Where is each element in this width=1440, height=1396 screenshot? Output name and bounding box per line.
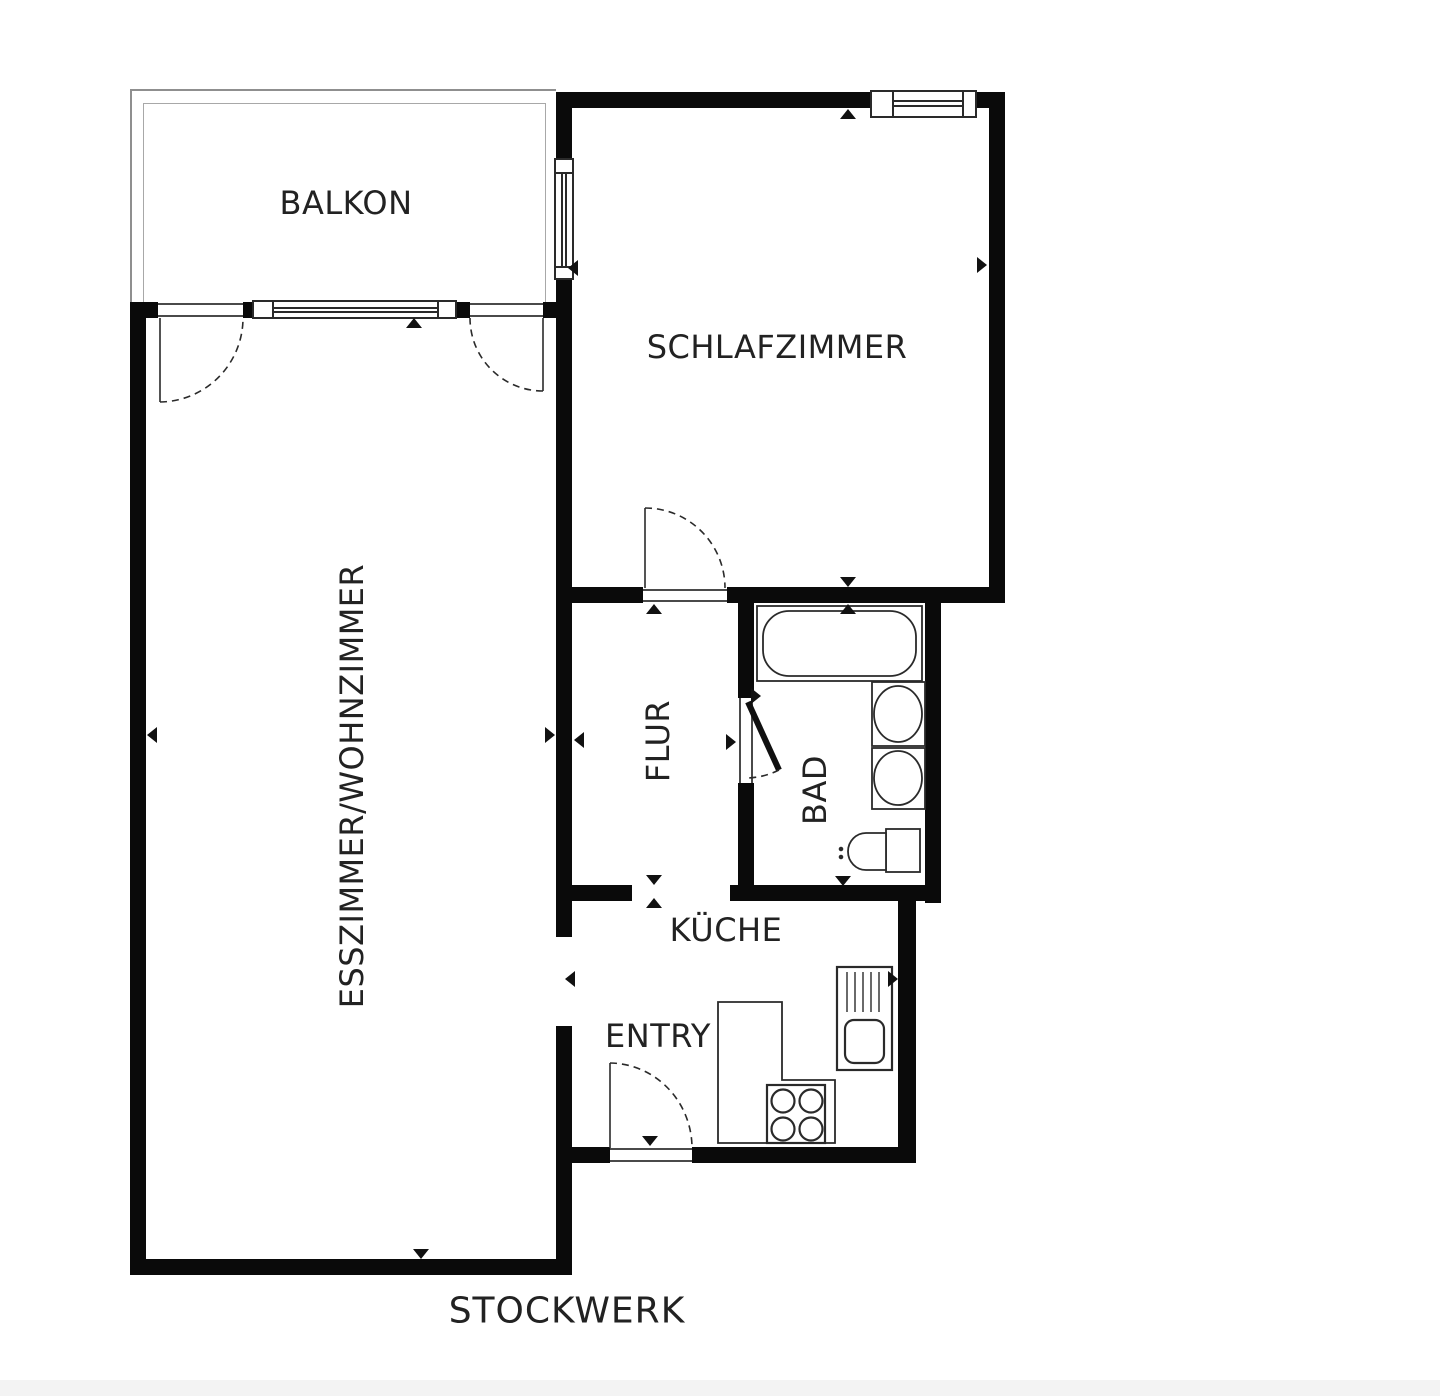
- marker-kitchen-opening: [646, 898, 662, 908]
- marker-bedroom-window: [568, 260, 578, 276]
- bathroom-door-arc: [748, 770, 779, 778]
- washbasin-1-bowl: [874, 686, 922, 742]
- marker-bath-bottom: [835, 876, 851, 886]
- bathtub-basin: [763, 611, 916, 676]
- floor-plan-canvas: BALKON SCHLAFZIMMER ESSZIMMER/WOHNZIMMER…: [0, 0, 1440, 1396]
- bedroom-door-arc: [645, 508, 725, 588]
- room-label-flur: FLUR: [639, 700, 677, 782]
- floor-title: STOCKWERK: [449, 1291, 686, 1332]
- marker-bedroom-top: [840, 109, 856, 119]
- page-edge-strip: [0, 1380, 1440, 1396]
- marker-entry-opening: [565, 971, 575, 987]
- bathroom-door-leaf: [748, 702, 779, 770]
- marker-living-right: [545, 727, 555, 743]
- toilet-hinge-dot-2: [839, 855, 842, 858]
- marker-flur-left: [574, 732, 584, 748]
- marker-bedroom-bottom: [840, 577, 856, 587]
- room-label-schlafzimmer: SCHLAFZIMMER: [647, 328, 908, 366]
- kitchen-sink-basin: [845, 1020, 884, 1063]
- balcony-door-right-arc: [470, 318, 543, 391]
- marker-bedroom-right: [977, 257, 987, 273]
- marker-living-top: [406, 318, 422, 328]
- room-label-kueche: KÜCHE: [670, 911, 783, 949]
- marker-bath-door: [751, 688, 761, 704]
- toilet-tank: [886, 829, 920, 872]
- room-label-entry: ENTRY: [605, 1017, 711, 1055]
- stove-burner-4: [800, 1118, 823, 1141]
- room-label-balkon: BALKON: [279, 184, 412, 222]
- marker-entry-door: [642, 1136, 658, 1146]
- marker-living-bottom: [413, 1249, 429, 1259]
- marker-living-left: [147, 727, 157, 743]
- toilet-bowl: [848, 833, 886, 870]
- marker-flur-right: [726, 734, 736, 750]
- stove-burner-1: [772, 1090, 795, 1113]
- balcony-door-left-arc: [160, 318, 243, 402]
- marker-flur-top: [646, 604, 662, 614]
- stove-burner-3: [772, 1118, 795, 1141]
- marker-bath-top: [840, 604, 856, 614]
- room-label-esszimmer-wohnzimmer: ESSZIMMER/WOHNZIMMER: [333, 564, 371, 1009]
- room-label-bad: BAD: [796, 755, 834, 825]
- stove-burner-2: [800, 1090, 823, 1113]
- doors-and-fixtures-layer: [0, 0, 1440, 1396]
- toilet-hinge-dot-1: [839, 847, 842, 850]
- marker-flur-opening: [646, 875, 662, 885]
- washbasin-2-bowl: [874, 751, 922, 805]
- marker-kitchen-right: [888, 971, 898, 987]
